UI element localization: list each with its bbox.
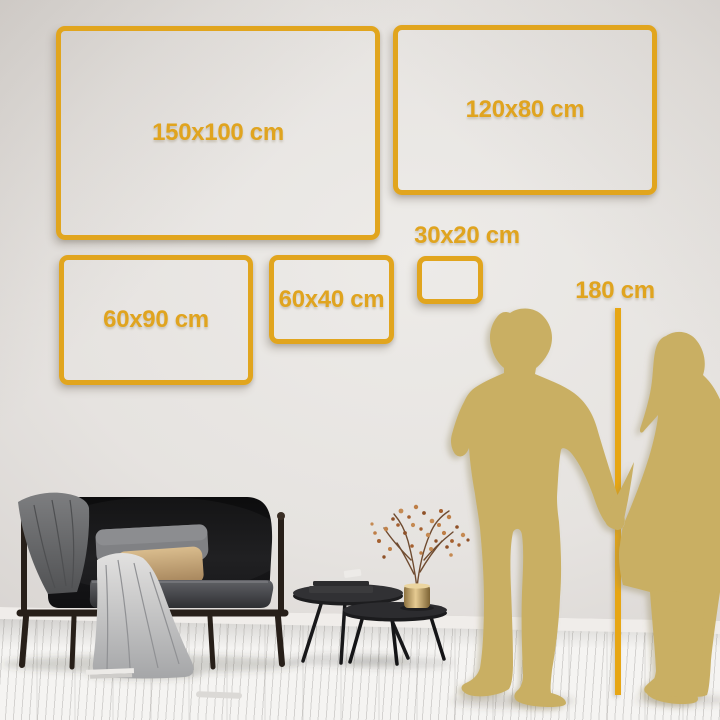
books-on-table xyxy=(309,569,373,593)
silhouettes xyxy=(451,308,720,707)
size-guide-diagram: 150x100 cm 120x80 cm 60x90 cm 60x40 cm 3… xyxy=(0,0,720,720)
man-silhouette xyxy=(451,308,625,707)
coffee-tables xyxy=(293,505,470,664)
room-scene xyxy=(0,0,720,720)
plant-blossoms xyxy=(370,505,469,559)
books-on-floor xyxy=(86,668,134,679)
